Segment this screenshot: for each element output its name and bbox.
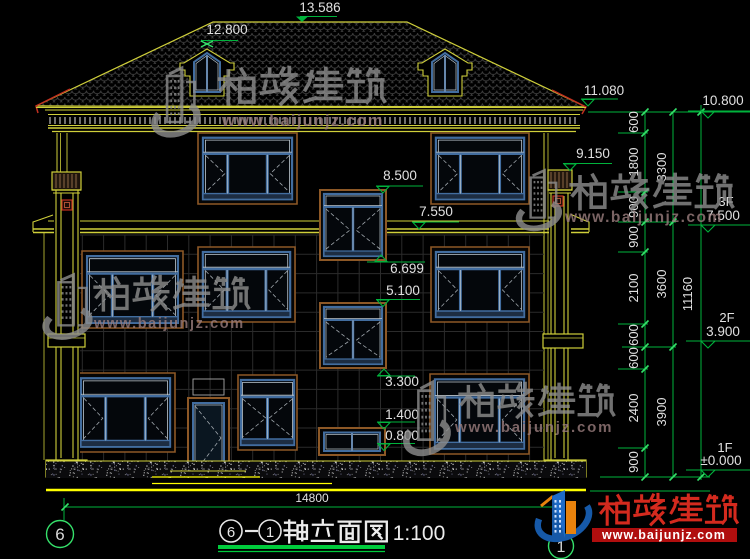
svg-text:6: 6	[55, 525, 64, 544]
svg-text:600: 600	[626, 111, 641, 133]
svg-text:2F: 2F	[719, 310, 734, 325]
svg-text:www.baijunjz.com: www.baijunjz.com	[221, 112, 384, 130]
svg-text:www.baijunjz.com: www.baijunjz.com	[601, 528, 726, 542]
svg-text:14800: 14800	[295, 491, 329, 505]
svg-text:6.699: 6.699	[390, 261, 424, 276]
svg-text:±0.000: ±0.000	[700, 453, 741, 468]
svg-text:600: 600	[626, 324, 641, 346]
svg-text:12.800: 12.800	[206, 22, 247, 37]
svg-text:900: 900	[626, 226, 641, 248]
svg-text:www.baijunjz.com: www.baijunjz.com	[93, 316, 245, 332]
svg-text:3.900: 3.900	[706, 324, 740, 339]
svg-text:1:100: 1:100	[393, 522, 446, 545]
svg-text:3600: 3600	[654, 270, 669, 299]
svg-text:900: 900	[626, 451, 641, 473]
svg-text:600: 600	[626, 347, 641, 369]
svg-text:10.800: 10.800	[702, 93, 743, 108]
svg-text:0.800: 0.800	[385, 428, 419, 443]
svg-text:3900: 3900	[654, 398, 669, 427]
svg-text:1.400: 1.400	[385, 407, 419, 422]
svg-text:8.500: 8.500	[383, 168, 417, 183]
svg-text:2100: 2100	[626, 274, 641, 303]
svg-text:9.150: 9.150	[576, 146, 610, 161]
svg-text:5.100: 5.100	[386, 283, 420, 298]
svg-text:2400: 2400	[626, 394, 641, 423]
svg-text:www.baijunjz.com: www.baijunjz.com	[454, 419, 613, 436]
svg-text:6: 6	[227, 524, 235, 541]
svg-text:www.baijunjz.com: www.baijunjz.com	[564, 209, 723, 226]
svg-text:1: 1	[266, 524, 274, 541]
svg-text:7.550: 7.550	[419, 204, 453, 219]
svg-text:11.080: 11.080	[584, 83, 624, 98]
svg-text:13.586: 13.586	[299, 0, 340, 15]
svg-text:11160: 11160	[680, 277, 695, 311]
